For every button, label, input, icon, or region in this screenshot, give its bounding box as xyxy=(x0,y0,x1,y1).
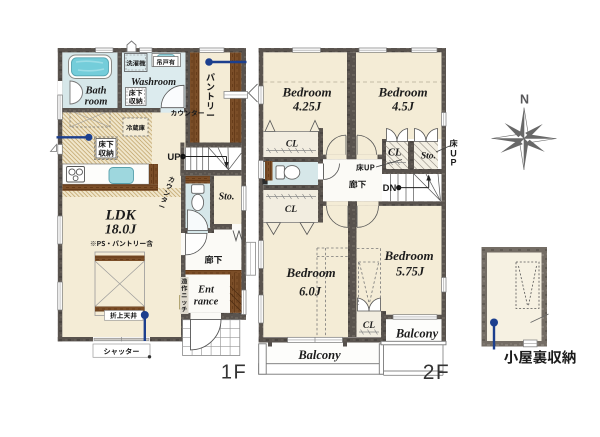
svg-text:Bedroom: Bedroom xyxy=(377,85,427,100)
svg-text:Sto.: Sto. xyxy=(219,192,235,203)
svg-text:UP: UP xyxy=(167,152,181,163)
svg-text:P: P xyxy=(450,158,456,168)
svg-text:Bath: Bath xyxy=(84,86,106,97)
svg-text:CL: CL xyxy=(286,140,298,150)
svg-text:1F: 1F xyxy=(221,362,247,384)
svg-text:room: room xyxy=(85,97,108,108)
svg-text:CL: CL xyxy=(285,205,297,215)
svg-text:DN: DN xyxy=(383,183,397,194)
svg-text:Balcony: Balcony xyxy=(297,348,341,362)
svg-text:Washroom: Washroom xyxy=(131,77,176,88)
svg-text:N: N xyxy=(520,93,529,107)
svg-text:4.25J: 4.25J xyxy=(292,100,322,114)
svg-text:5.75J: 5.75J xyxy=(396,265,425,279)
svg-text:Bedroom: Bedroom xyxy=(383,248,433,263)
svg-text:6.0J: 6.0J xyxy=(299,285,322,299)
svg-text:Bedroom: Bedroom xyxy=(285,265,335,280)
svg-text:Balcony: Balcony xyxy=(395,327,439,341)
svg-text:18.0J: 18.0J xyxy=(105,223,138,238)
svg-text:CL: CL xyxy=(363,321,375,331)
svg-text:4.5J: 4.5J xyxy=(391,100,415,114)
svg-text:rance: rance xyxy=(194,297,219,308)
svg-text:CL: CL xyxy=(388,148,401,159)
svg-text:Sto.: Sto. xyxy=(421,152,436,162)
svg-text:LDK: LDK xyxy=(105,208,137,224)
svg-text:Ent: Ent xyxy=(197,285,215,296)
svg-text:Bedroom: Bedroom xyxy=(281,85,331,100)
svg-text:2F: 2F xyxy=(423,361,451,384)
